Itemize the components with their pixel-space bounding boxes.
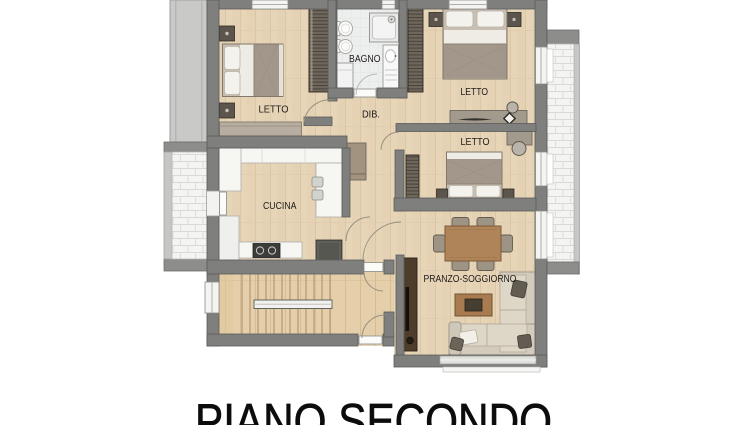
svg-text:PRANZO-SOGGIORNO: PRANZO-SOGGIORNO: [424, 273, 517, 285]
svg-text:PIANO SECONDO: PIANO SECONDO: [195, 395, 552, 425]
svg-text:LETTO: LETTO: [461, 87, 489, 98]
svg-text:LETTO: LETTO: [259, 105, 289, 116]
svg-text:DIB.: DIB.: [362, 110, 380, 121]
svg-text:CUCINA: CUCINA: [263, 201, 297, 212]
svg-text:LETTO: LETTO: [461, 137, 490, 148]
svg-text:BAGNO: BAGNO: [349, 53, 381, 65]
